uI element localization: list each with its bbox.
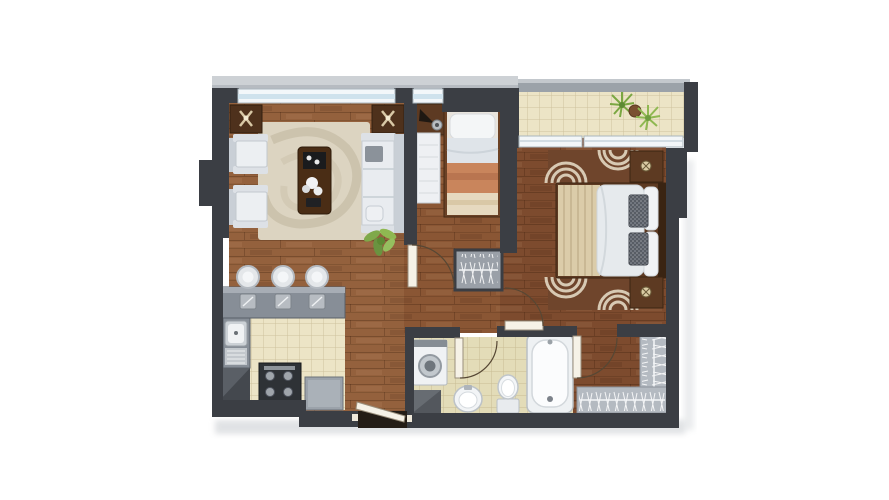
single-bed-footer-stripe: [447, 200, 498, 205]
armchair-2-seat: [236, 192, 267, 221]
bathroom-door-leaf: [455, 338, 463, 378]
table-remote: [306, 198, 321, 207]
small-bedroom-speaker-center: [435, 123, 439, 127]
kitchen-table-top: [308, 380, 340, 407]
balcony-plant-pot: [629, 105, 641, 117]
bathtub-drain: [547, 396, 553, 402]
wall-left-lower: [212, 238, 223, 404]
pedestal-sink-bowl: [459, 392, 477, 408]
tray-cup-2: [315, 160, 320, 165]
floor-plan-svg: [0, 0, 889, 500]
pedestal-sink-tap: [464, 385, 472, 390]
washing-machine-panel: [413, 340, 447, 347]
entrance-door-frame-left: [352, 414, 358, 421]
bar-stool-1-cushion: [243, 272, 254, 283]
tray-cup-1: [307, 156, 312, 161]
wall-top-mid-thick: [442, 100, 506, 112]
master-door-leaf: [505, 321, 543, 330]
coffee-table-tray: [303, 152, 326, 169]
wall-small-bedroom-right: [500, 103, 517, 253]
wall-bottom-right: [407, 413, 679, 428]
wall-small-bedroom-left: [404, 103, 417, 245]
toilet-tank: [497, 399, 519, 413]
small-bedroom-door-leaf: [408, 245, 417, 287]
wall-left-upper: [212, 88, 229, 238]
table-flowers-2: [302, 185, 310, 193]
floor-plan: [0, 0, 889, 500]
washing-machine-drum-inner: [425, 361, 436, 372]
wall-top-left: [212, 88, 239, 103]
bar-stool-3-cushion: [312, 272, 323, 283]
stove-knob-strip: [264, 366, 295, 370]
entrance-door-frame-right: [407, 415, 412, 422]
wall-bathroom-top-left: [405, 327, 460, 338]
single-bed-blanket-stripe: [447, 173, 498, 180]
master-cushion-1-knit: [629, 195, 648, 227]
floor-plan-items: [199, 76, 698, 434]
bar-stool-2-cushion: [278, 272, 289, 283]
stove-burner-1: [266, 372, 275, 381]
wall-balcony-right: [684, 82, 698, 152]
wall-left-bump: [199, 160, 213, 206]
lamp-right-bulb: [386, 116, 391, 121]
wall-right-upper: [666, 148, 687, 218]
kitchen-sink-drain: [234, 331, 238, 335]
sofa-throw: [365, 146, 383, 162]
wall-top-pillar: [394, 88, 414, 103]
balcony-plant-2-center: [645, 115, 651, 121]
master-bed-headboard: [658, 183, 667, 278]
bathtub-faucet: [548, 340, 553, 345]
closet-door-leaf: [573, 336, 581, 378]
living-plant-center: [377, 237, 385, 245]
balcony-railing-highlight: [518, 79, 690, 83]
stove-burner-4: [284, 388, 293, 397]
armchair-1-seat: [236, 141, 267, 167]
toilet-seat: [502, 380, 515, 397]
stove-burner-3: [266, 388, 275, 397]
balcony-plant-1-center: [619, 102, 625, 108]
lamp-left-bulb: [244, 116, 249, 121]
wall-bathroom-left: [405, 337, 414, 417]
master-cushion-2-knit: [629, 233, 648, 265]
table-flowers-3: [314, 187, 323, 196]
sofa-back: [394, 134, 404, 233]
sofa-pillow: [366, 206, 383, 221]
balcony-floor-tiles: [512, 92, 684, 138]
wall-bottom-kitchen: [212, 400, 306, 417]
window-small-bedroom-glass: [413, 94, 443, 99]
wall-right-lower: [666, 218, 679, 428]
stove-burner-2: [284, 372, 293, 381]
single-bed-pillow: [450, 114, 495, 139]
window-living-glass: [238, 94, 395, 99]
